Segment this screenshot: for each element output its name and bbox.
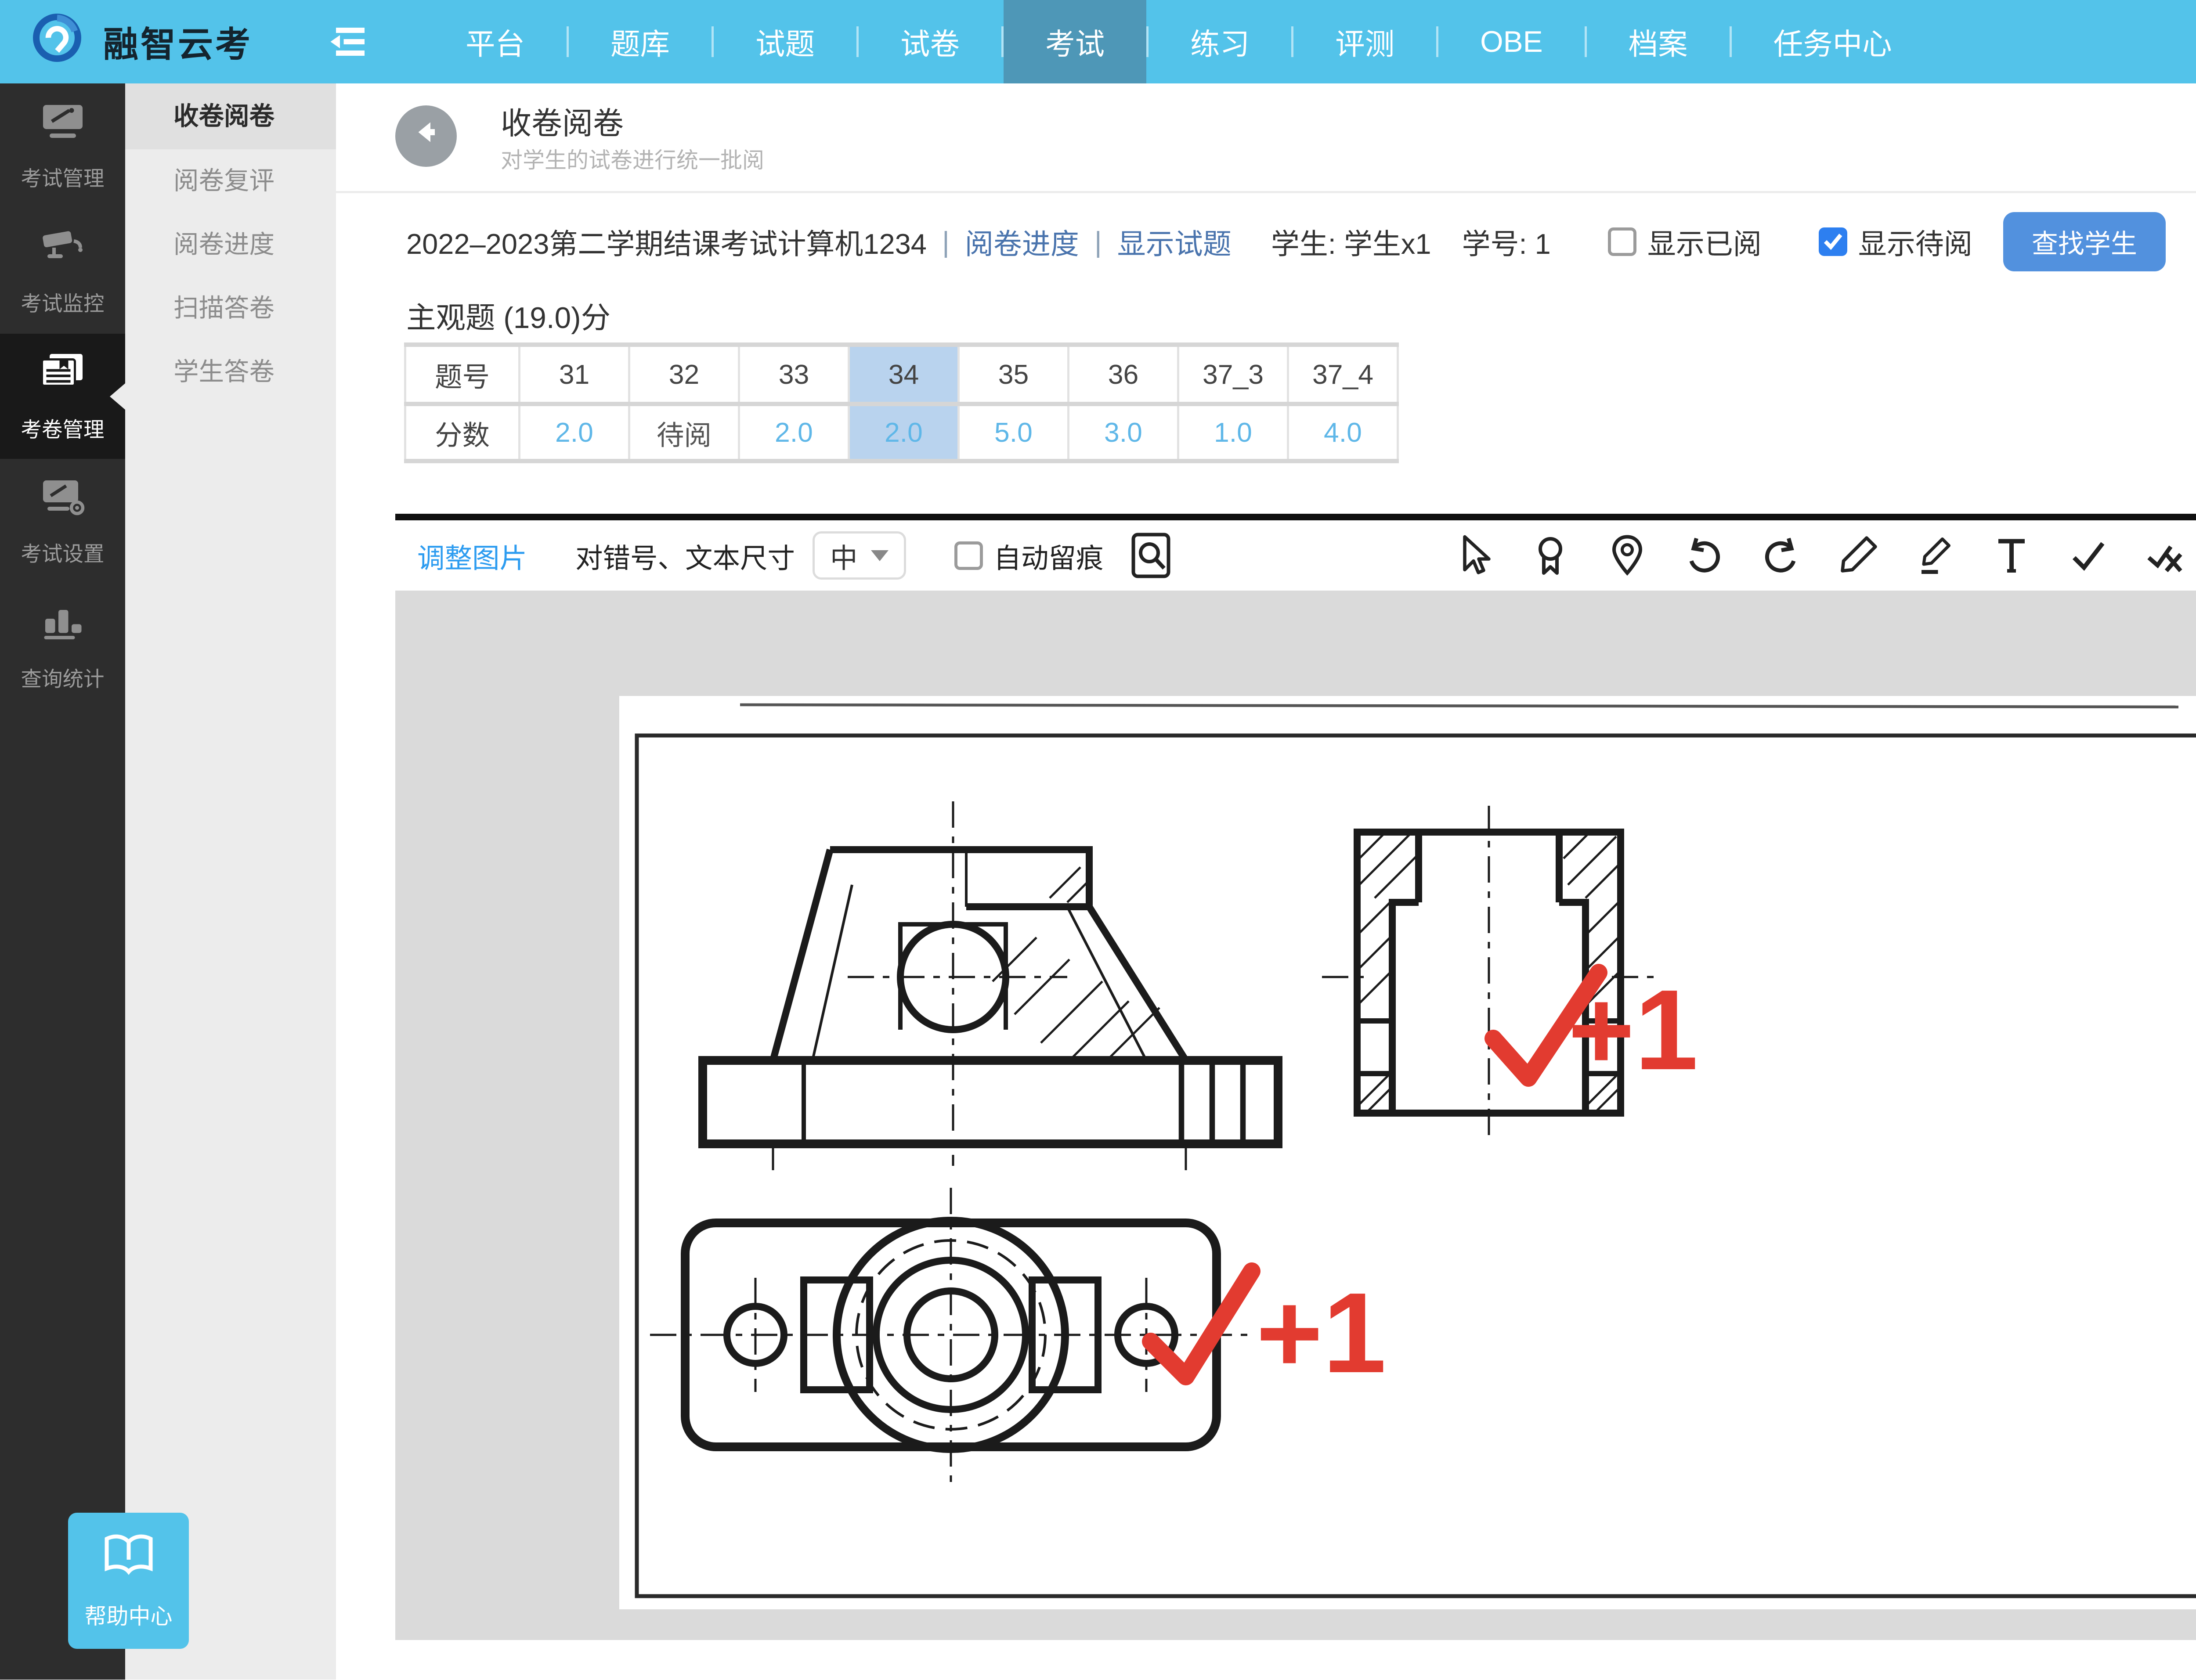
- score-32[interactable]: 待阅: [629, 404, 739, 461]
- plus-one-annotation: +1: [1256, 1269, 1386, 1397]
- sidebar-item-exam-settings[interactable]: 考试设置: [0, 459, 125, 584]
- badge-tool-icon[interactable]: [1526, 531, 1575, 580]
- exam-title: 2022–2023第二学期结课考试计算机1234: [406, 221, 927, 262]
- arrow-left-icon: [408, 115, 444, 158]
- scanned-answer-sheet: +1 +1: [619, 696, 2196, 1609]
- question-score-table: 题号 31 32 33 34 35 36 37_3 37_4 分数 2.0 待阅…: [404, 342, 1399, 463]
- sidebar-item-exam-management[interactable]: 考试管理: [0, 83, 125, 209]
- nav-item-task-center[interactable]: 任务中心: [1732, 0, 1934, 83]
- page-title: 收卷阅卷: [501, 99, 624, 143]
- question-tab-36[interactable]: 36: [1069, 345, 1178, 404]
- grading-progress-link[interactable]: 阅卷进度: [965, 221, 1079, 262]
- exam-info-bar: 2022–2023第二学期结课考试计算机1234 | 阅卷进度 | 显示试题 学…: [406, 211, 2196, 272]
- grading-annotation-1: +1: [1493, 966, 1698, 1094]
- application-window: 融智云考 平台 题库 试题 试卷 考试 练习 评测 OBE 档案 任务中心 ?: [0, 0, 2196, 1680]
- top-navbar: 融智云考 平台 题库 试题 试卷 考试 练习 评测 OBE 档案 任务中心 ?: [0, 0, 2196, 83]
- pencil-tool-icon[interactable]: [1834, 531, 1882, 580]
- nav-item-practice[interactable]: 练习: [1149, 0, 1291, 83]
- sidebar-item-query-statistics[interactable]: 查询统计: [0, 584, 125, 709]
- back-button[interactable]: [395, 105, 457, 167]
- main-content: 收卷阅卷 对学生的试卷进行统一批阅 2022–2023第二学期结课考试计算机12…: [336, 83, 2196, 1680]
- submenu-item-grading-progress[interactable]: 阅卷进度: [125, 213, 336, 277]
- cursor-tool-icon[interactable]: [1449, 531, 1498, 580]
- brand-logo-icon: [29, 9, 86, 75]
- nav-item-questions[interactable]: 试题: [714, 0, 856, 83]
- edit-pencil-underline-tool-icon[interactable]: [1911, 531, 1959, 580]
- answer-sheet-viewer: 调整图片 对错号、文本尺寸 中 自动留痕: [395, 514, 2196, 1640]
- question-number-row: 题号 31 32 33 34 35 36 37_3 37_4: [405, 345, 1398, 404]
- score-37-3[interactable]: 1.0: [1178, 404, 1288, 461]
- score-33[interactable]: 2.0: [739, 404, 849, 461]
- page-subtitle: 对学生的试卷进行统一批阅: [501, 143, 764, 174]
- sidebar-item-exam-monitoring[interactable]: 考试监控: [0, 209, 125, 334]
- exam-paper-management-icon: [36, 350, 89, 404]
- question-tab-37-4[interactable]: 37_4: [1288, 345, 1398, 404]
- open-book-icon: [100, 1531, 157, 1588]
- score-34[interactable]: 2.0: [849, 404, 959, 461]
- exam-monitoring-icon: [39, 226, 87, 278]
- main-nav: 平台 题库 试题 试卷 考试 练习 评测 OBE 档案 任务中心: [424, 0, 1934, 83]
- submenu-item-collect-and-grade[interactable]: 收卷阅卷: [125, 83, 336, 149]
- engineering-drawing: +1 +1: [619, 696, 2196, 1609]
- annotation-tools: [1449, 529, 2196, 582]
- submenu-item-grading-reevaluation[interactable]: 阅卷复评: [125, 149, 336, 213]
- auto-trace-checkbox[interactable]: 自动留痕: [954, 536, 1104, 576]
- nav-item-papers[interactable]: 试卷: [859, 0, 1001, 83]
- plus-one-annotation: +1: [1568, 966, 1698, 1094]
- nav-item-platform[interactable]: 平台: [424, 0, 567, 83]
- exam-settings-icon: [39, 476, 87, 528]
- query-statistics-icon: [39, 601, 87, 653]
- nav-item-question-bank[interactable]: 题库: [569, 0, 712, 83]
- checkbox-unchecked[interactable]: [954, 541, 983, 570]
- show-pending-checkbox[interactable]: 显示待阅: [1819, 221, 1972, 262]
- viewer-toolbar: 调整图片 对错号、文本尺寸 中 自动留痕: [395, 520, 2196, 591]
- bottom-view: [650, 1188, 1256, 1482]
- nav-item-evaluation[interactable]: 评测: [1293, 0, 1436, 83]
- nav-item-exam[interactable]: 考试: [1004, 0, 1146, 83]
- chevron-down-icon: [871, 550, 889, 561]
- secondary-sidebar: 收卷阅卷 阅卷复评 阅卷进度 扫描答卷 学生答卷: [125, 83, 336, 1680]
- question-tab-37-3[interactable]: 37_3: [1178, 345, 1288, 404]
- submenu-item-student-answer-sheets[interactable]: 学生答卷: [125, 340, 336, 404]
- redo-icon[interactable]: [1757, 531, 1805, 580]
- brand-title: 融智云考: [103, 16, 253, 67]
- check-mark-tool-icon[interactable]: [2064, 531, 2113, 580]
- show-reviewed-checkbox[interactable]: 显示已阅: [1608, 221, 1762, 262]
- student-name: 学生: 学生x1: [1271, 221, 1431, 262]
- page-header: 收卷阅卷 对学生的试卷进行统一批阅: [336, 83, 2196, 193]
- question-tab-35[interactable]: 35: [959, 345, 1069, 404]
- help-center-button[interactable]: 帮助中心: [68, 1513, 189, 1649]
- score-35[interactable]: 5.0: [959, 404, 1069, 461]
- student-number: 学号: 1: [1462, 221, 1551, 262]
- answer-sheet-canvas[interactable]: +1 +1: [395, 591, 2196, 1640]
- left-sidebar: 考试管理 考试监控 考卷管理 考试设置 查询统计 帮助中心: [0, 83, 125, 1680]
- front-view: [703, 801, 1278, 1175]
- mark-size-label: 对错号、文本尺寸: [575, 536, 795, 576]
- location-pin-tool-icon[interactable]: [1603, 531, 1651, 580]
- score-31[interactable]: 2.0: [520, 404, 629, 461]
- grading-annotation-2: +1: [1151, 1269, 1386, 1397]
- brand: 融智云考: [0, 0, 329, 83]
- nav-item-archive[interactable]: 档案: [1587, 0, 1730, 83]
- red-check-mark: [1151, 1271, 1252, 1377]
- nav-item-obe[interactable]: OBE: [1438, 0, 1585, 83]
- question-tab-32[interactable]: 32: [629, 345, 739, 404]
- magnifier-document-icon[interactable]: [1130, 531, 1172, 580]
- question-tab-31[interactable]: 31: [520, 345, 629, 404]
- score-36[interactable]: 3.0: [1069, 404, 1178, 461]
- question-tab-33[interactable]: 33: [739, 345, 849, 404]
- checkbox-unchecked[interactable]: [1608, 227, 1636, 256]
- submenu-item-scan-answer-sheets[interactable]: 扫描答卷: [125, 277, 336, 340]
- checkbox-checked[interactable]: [1819, 227, 1847, 256]
- subjective-section-title: 主观题 (19.0)分: [406, 294, 610, 337]
- text-tool-icon[interactable]: [1987, 531, 2036, 580]
- sidebar-item-exam-paper-management[interactable]: 考卷管理: [0, 334, 125, 459]
- adjust-image-link[interactable]: 调整图片: [417, 536, 527, 576]
- mark-size-select[interactable]: 中: [813, 531, 906, 580]
- exam-management-icon: [39, 101, 87, 153]
- show-question-link[interactable]: 显示试题: [1117, 221, 1232, 262]
- question-score-row: 分数 2.0 待阅 2.0 2.0 5.0 3.0 1.0 4.0: [405, 404, 1398, 461]
- find-student-button[interactable]: 查找学生: [2003, 212, 2166, 271]
- score-37-4[interactable]: 4.0: [1288, 404, 1398, 461]
- question-tab-34[interactable]: 34: [849, 345, 959, 404]
- undo-icon[interactable]: [1680, 531, 1728, 580]
- half-check-cross-tool-icon[interactable]: [2141, 531, 2189, 580]
- collapse-menu-icon[interactable]: [329, 0, 367, 83]
